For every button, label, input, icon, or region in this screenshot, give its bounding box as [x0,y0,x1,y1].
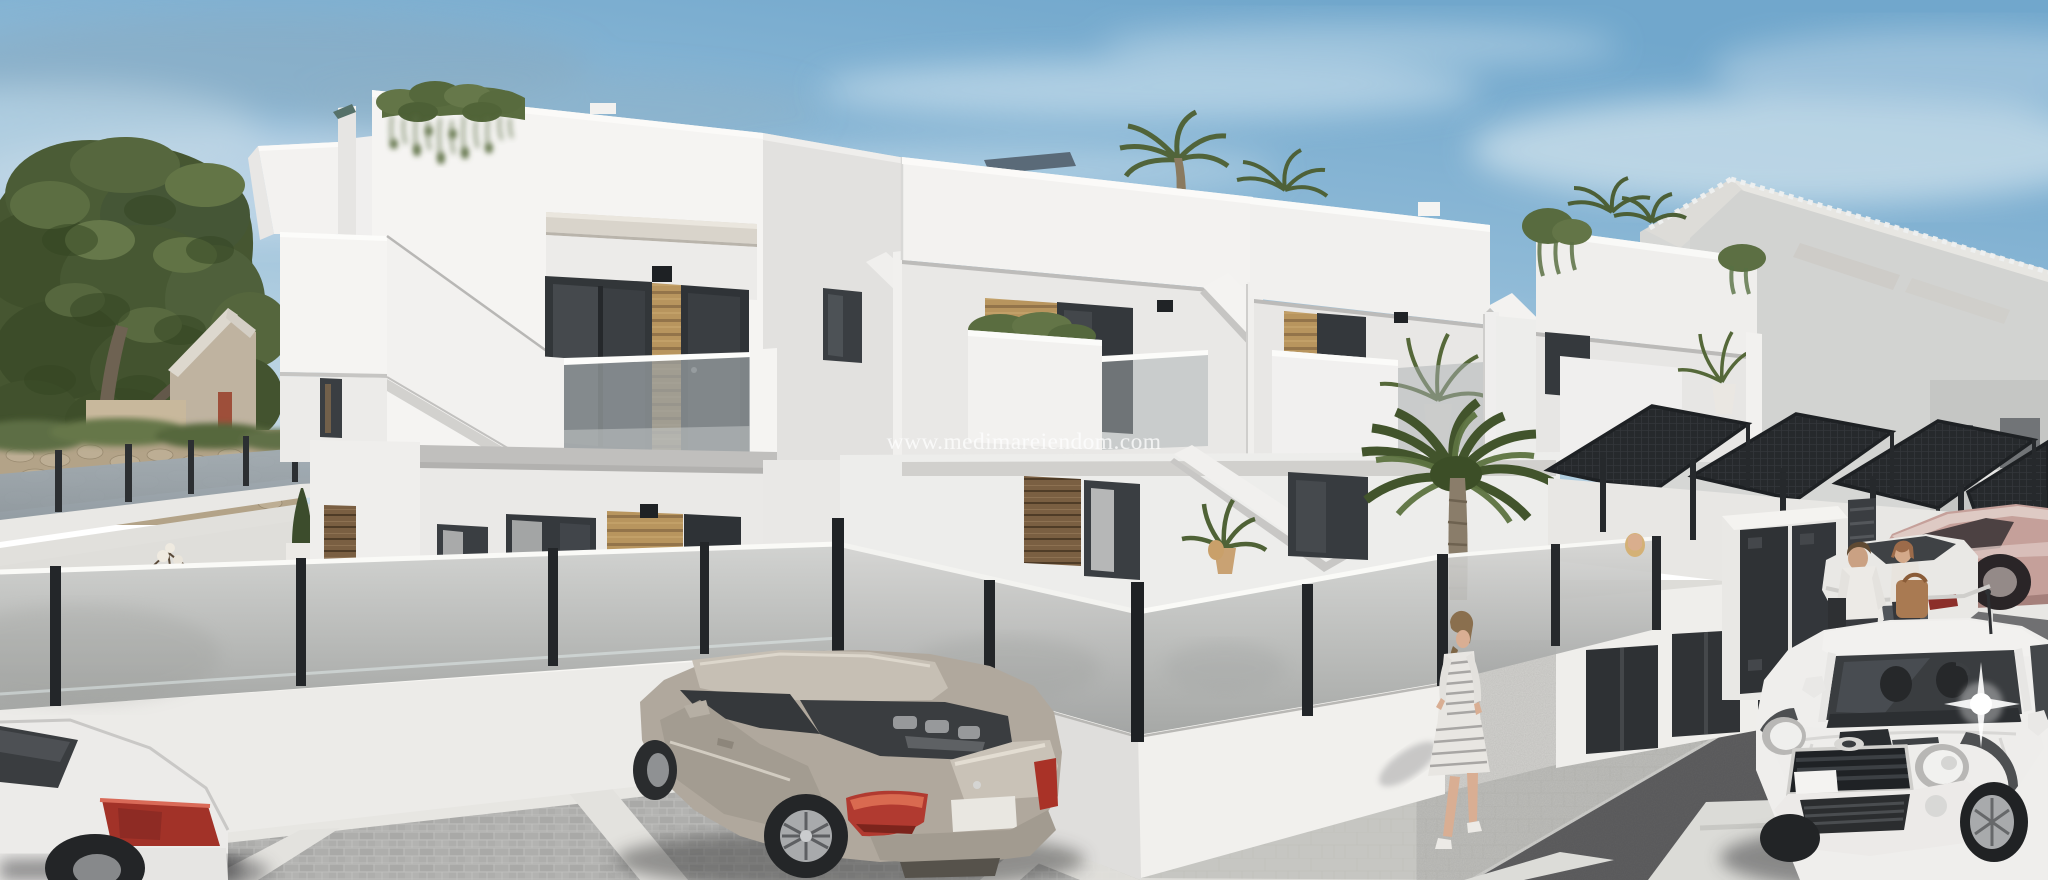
svg-text:www.medimareiendom.com: www.medimareiendom.com [887,429,1162,455]
